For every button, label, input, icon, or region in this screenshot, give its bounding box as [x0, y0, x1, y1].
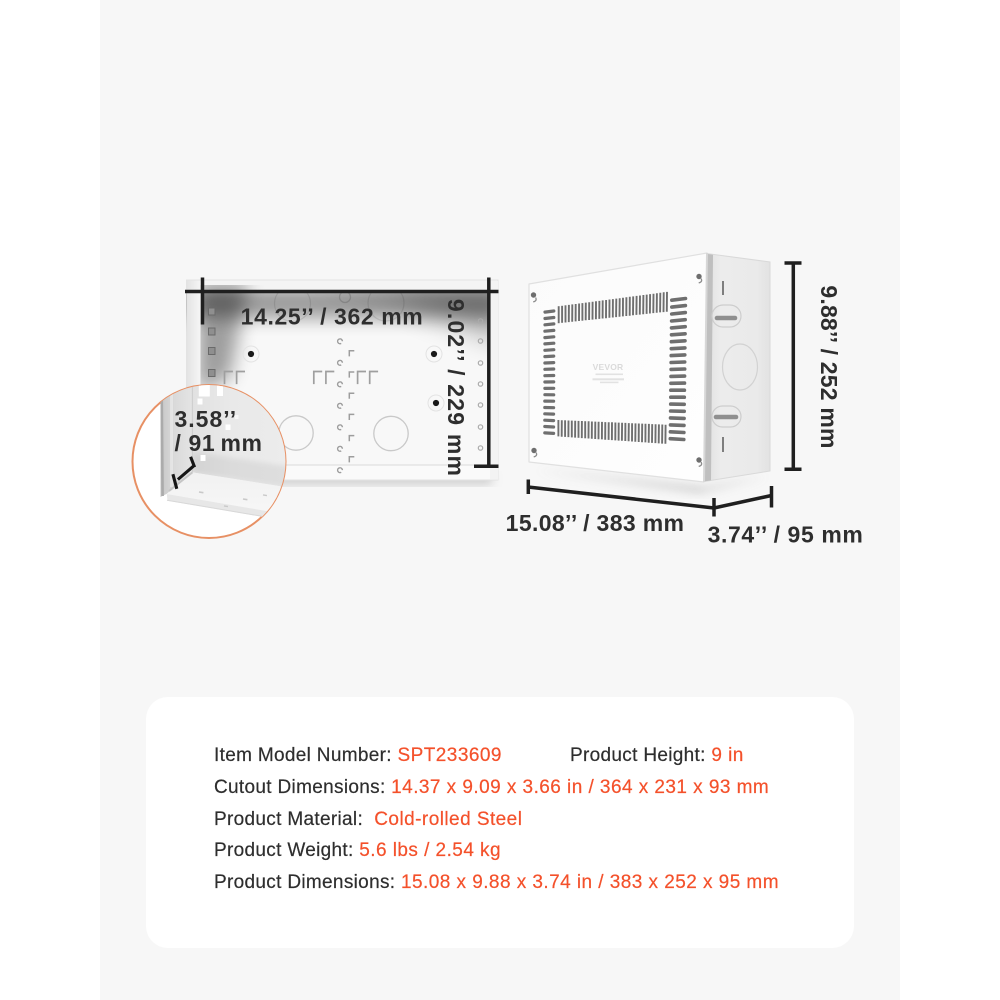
svg-text:15.08’’ / 383 mm: 15.08’’ / 383 mm	[506, 510, 685, 536]
svg-text:VEVOR: VEVOR	[593, 362, 624, 372]
svg-text:9.88’’ / 252 mm: 9.88’’ / 252 mm	[816, 285, 842, 448]
svg-text:/ 91 mm: / 91 mm	[175, 430, 263, 456]
svg-text:3.74’’ / 95 mm: 3.74’’ / 95 mm	[708, 522, 864, 548]
svg-text:3.58’’: 3.58’’	[175, 406, 238, 432]
svg-text:14.25’’ / 362 mm: 14.25’’ / 362 mm	[241, 304, 424, 330]
svg-text:9.02’’ / 229 mm: 9.02’’ / 229 mm	[443, 299, 469, 477]
